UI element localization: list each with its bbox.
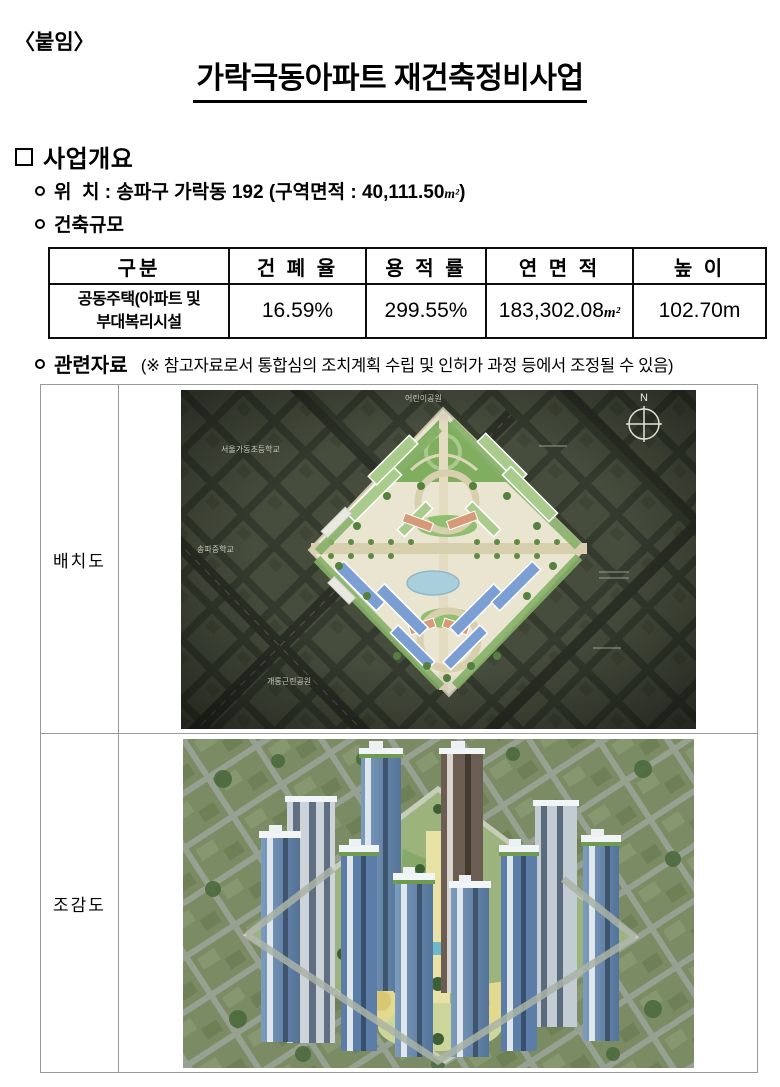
table-row: 공동주택(아파트 및 부대복리시설 16.59% 299.55% 183,302… bbox=[49, 284, 766, 338]
siteplan-cell: N 서울가동초등학교 어린이공원 송파중학교 개롱근린공원 bbox=[119, 385, 758, 734]
label-school-left: 송파중학교 bbox=[197, 544, 234, 554]
label-school-top: 서울가동초등학교 bbox=[221, 444, 280, 454]
label-park-bottom: 개롱근린공원 bbox=[267, 676, 311, 686]
cell-coverage: 16.59% bbox=[229, 284, 366, 338]
figure-table: 배치도 bbox=[40, 384, 758, 1073]
location-text-close: ) bbox=[459, 182, 465, 203]
circle-bullet-icon bbox=[35, 359, 45, 369]
tower bbox=[581, 835, 621, 1041]
circle-bullet-icon bbox=[35, 219, 45, 229]
gfa-value: 183,302.08 bbox=[499, 299, 604, 322]
compass-north-label: N bbox=[640, 392, 648, 404]
square-bullet-icon bbox=[15, 148, 33, 166]
siteplan-label: 배치도 bbox=[41, 385, 119, 734]
cell-height: 102.70m bbox=[633, 284, 766, 338]
category-line2: 부대복리시설 bbox=[50, 311, 228, 334]
building-scale-table: 구분 건 폐 율 용 적 률 연 면 적 높 이 공동주택(아파트 및 부대복리… bbox=[48, 247, 767, 339]
related-note: (※ 참고자료로서 통합심의 조치계획 수립 및 인허가 과정 등에서 조정될 … bbox=[137, 352, 674, 376]
tower bbox=[393, 873, 435, 1057]
col-header-coverage: 건 폐 율 bbox=[229, 248, 366, 284]
site-plan-image: N 서울가동초등학교 어린이공원 송파중학교 개롱근린공원 bbox=[181, 390, 696, 729]
category-line1: 공동주택(아파트 및 bbox=[50, 288, 228, 311]
section-overview: 사업개요 bbox=[15, 139, 133, 174]
related-heading: 관련자료 bbox=[54, 349, 128, 378]
location-line: 위 치 : 송파구 가락동 192 (구역면적 : 40,111.50m²) bbox=[35, 177, 465, 204]
area-unit: m² bbox=[444, 186, 459, 201]
vignette-overlay bbox=[181, 390, 696, 729]
gfa-unit: m² bbox=[604, 305, 620, 321]
col-header-gfa: 연 면 적 bbox=[486, 248, 633, 284]
attachment-label: 〈붙임〉 bbox=[14, 26, 95, 56]
table-header-row: 구분 건 폐 율 용 적 률 연 면 적 높 이 bbox=[49, 248, 766, 284]
birdseye-row: 조감도 bbox=[41, 734, 758, 1073]
related-data-line: 관련자료 (※ 참고자료로서 통합심의 조치계획 수립 및 인허가 과정 등에서… bbox=[35, 349, 673, 378]
birdseye-cell bbox=[119, 734, 758, 1073]
location-text-main: 위 치 : 송파구 가락동 192 (구역면적 : 40,111.50 bbox=[54, 182, 444, 203]
page-title: 가락극동아파트 재건축정비사업 bbox=[193, 53, 586, 103]
cell-category: 공동주택(아파트 및 부대복리시설 bbox=[49, 284, 229, 338]
tower bbox=[259, 831, 301, 1042]
col-header-category: 구분 bbox=[49, 248, 229, 284]
building-scale-line: 건축규모 bbox=[35, 210, 124, 237]
cell-far: 299.55% bbox=[366, 284, 486, 338]
circle-bullet-icon bbox=[35, 186, 45, 196]
title-wrap: 가락극동아파트 재건축정비사업 bbox=[0, 53, 780, 103]
birdseye-label: 조감도 bbox=[41, 734, 119, 1073]
document-page: 〈붙임〉 가락극동아파트 재건축정비사업 사업개요 위 치 : 송파구 가락동 … bbox=[0, 0, 780, 1087]
col-header-height: 높 이 bbox=[633, 248, 766, 284]
overview-heading: 사업개요 bbox=[43, 139, 133, 174]
col-header-far: 용 적 률 bbox=[366, 248, 486, 284]
siteplan-row: 배치도 bbox=[41, 385, 758, 734]
cell-gfa: 183,302.08m² bbox=[486, 284, 633, 338]
location-text: 위 치 : 송파구 가락동 192 (구역면적 : 40,111.50m²) bbox=[54, 177, 465, 204]
birdseye-image bbox=[183, 739, 694, 1068]
building-scale-heading: 건축규모 bbox=[54, 210, 124, 237]
label-park-top: 어린이공원 bbox=[405, 393, 442, 403]
